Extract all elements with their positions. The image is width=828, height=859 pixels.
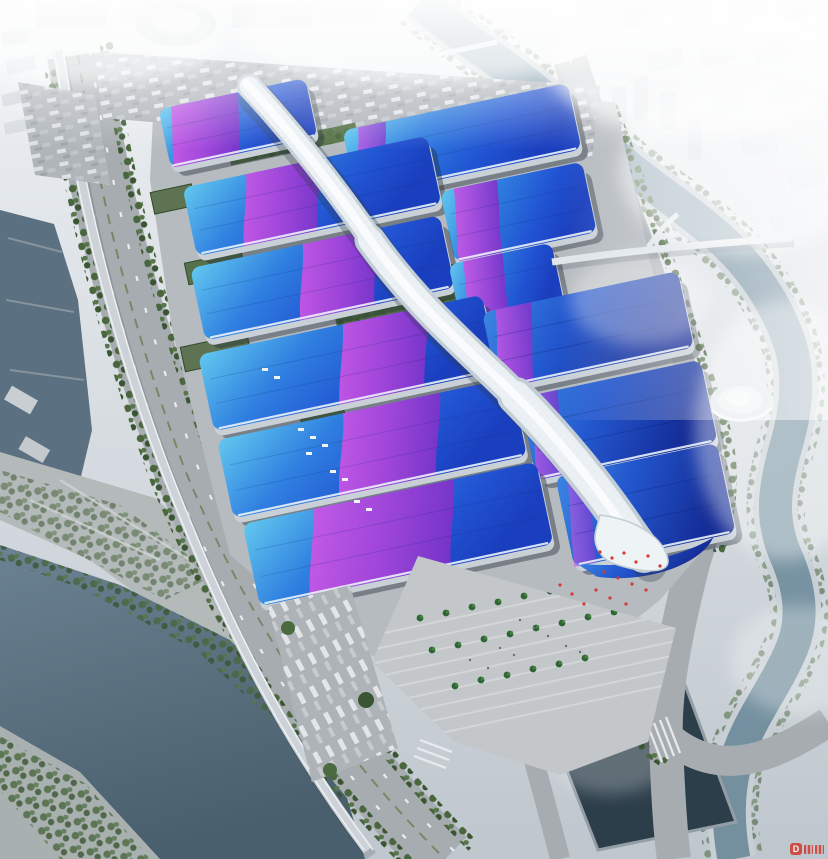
watermark: D: [790, 843, 824, 855]
aerial-rendering-exhibition-center: D: [0, 0, 828, 859]
watermark-glyph-icon: [804, 845, 813, 854]
watermark-logo-icon: D: [790, 843, 802, 855]
watermark-glyph-icon: [815, 845, 824, 854]
rendering-canvas: [0, 0, 828, 859]
